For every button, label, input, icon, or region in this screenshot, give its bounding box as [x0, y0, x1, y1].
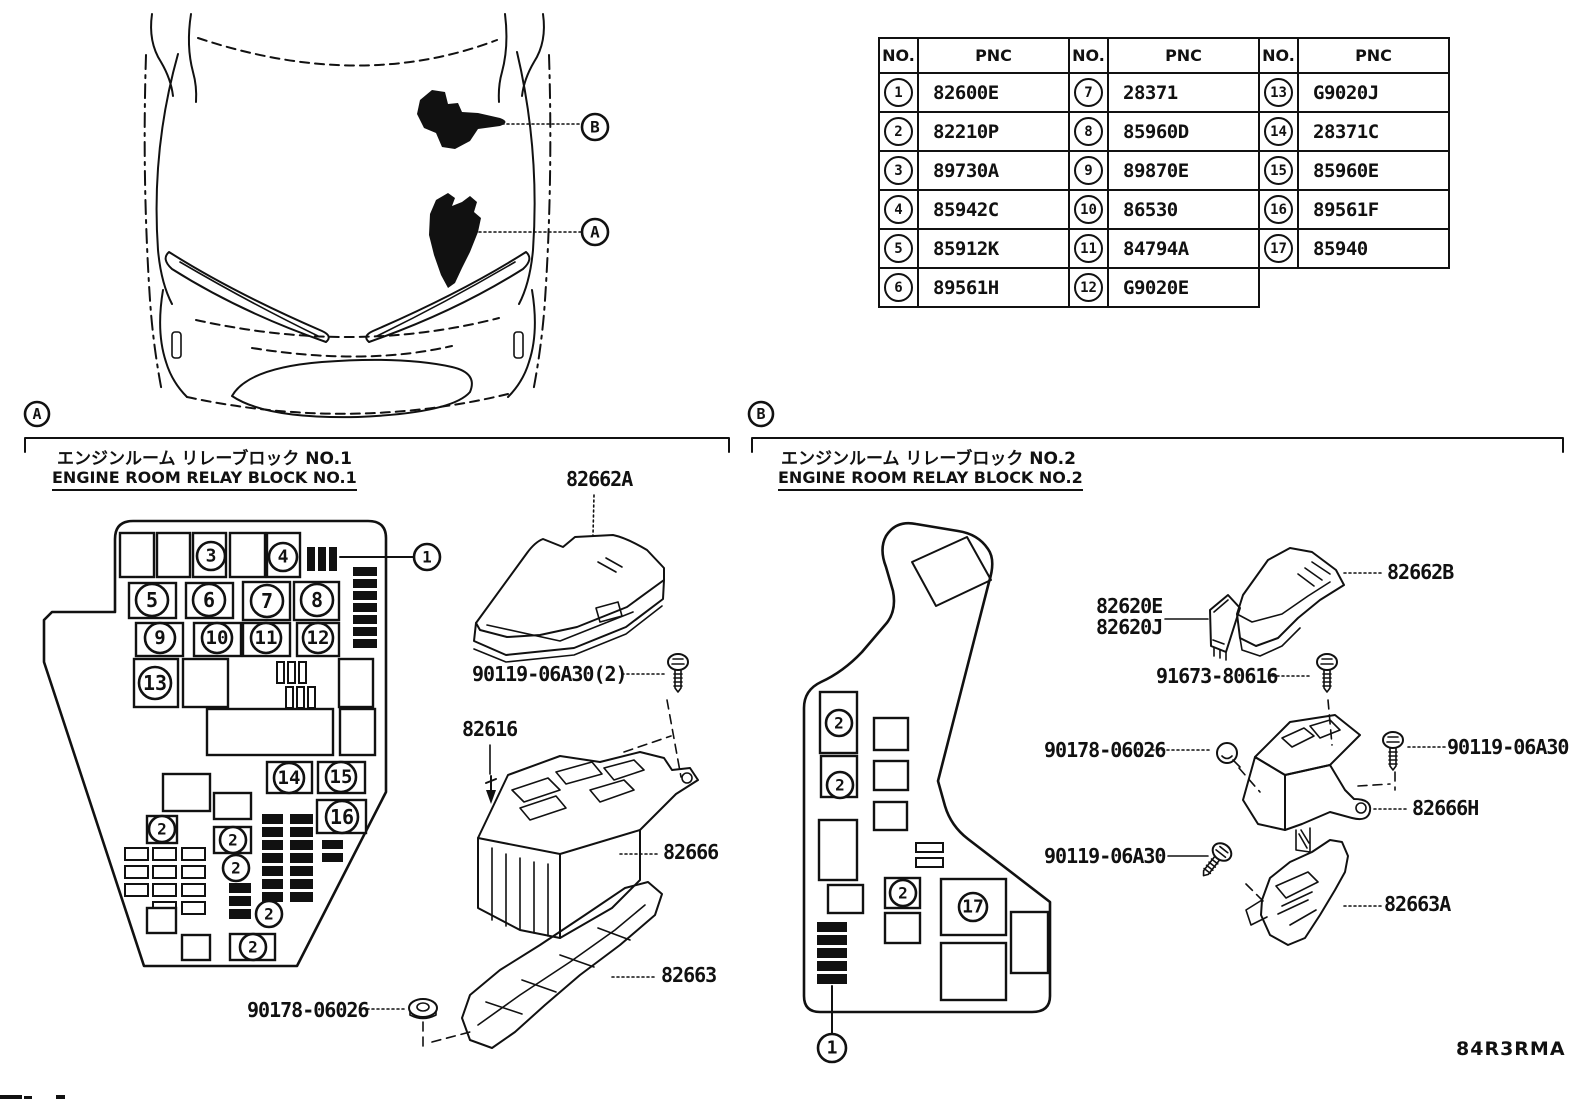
pnc-no-cell: 11: [1069, 229, 1108, 268]
part-label-82666h: 82666H: [1412, 797, 1478, 819]
svg-text:2: 2: [834, 714, 844, 733]
svg-text:15: 15: [330, 766, 353, 788]
pnc-table-row: 182600E72837113G9020J: [879, 73, 1449, 112]
pnc-no-badge: 3: [884, 156, 913, 185]
svg-text:2: 2: [157, 820, 167, 839]
part-label-90119r: 90119-06A30: [1447, 736, 1568, 758]
hood-overview-drawing: [145, 14, 581, 417]
pnc-value-cell: 28371: [1108, 73, 1259, 112]
bracket-82663a-drawing: [1246, 840, 1381, 945]
callout-3: 3: [197, 542, 225, 570]
pnc-no-cell: 8: [1069, 112, 1108, 151]
relay-block-a-location: [429, 193, 481, 288]
part-label-91673: 91673-80616: [1156, 665, 1277, 687]
pnc-no-badge: 6: [884, 273, 913, 302]
pnc-value-cell: 82600E: [918, 73, 1069, 112]
svg-text:12: 12: [307, 627, 330, 649]
pnc-value-cell: 82210P: [918, 112, 1069, 151]
svg-text:3: 3: [206, 546, 217, 567]
pnc-no-cell: 6: [879, 268, 918, 307]
part-label-82616: 82616: [462, 718, 517, 740]
svg-text:11: 11: [255, 627, 278, 649]
callout-2: 2: [149, 816, 175, 842]
callout-a: A: [25, 402, 49, 426]
callout-16: 16: [326, 801, 358, 833]
pnc-value-cell: 85912K: [918, 229, 1069, 268]
grommet-90178b-drawing: [1152, 743, 1260, 792]
part-label-82620j: 82620J: [1096, 616, 1162, 638]
callout-4: 4: [269, 543, 297, 571]
pnc-table-row: 389730A989870E1585960E: [879, 151, 1449, 190]
pnc-no-badge: 9: [1074, 156, 1103, 185]
pnc-no-cell: 9: [1069, 151, 1108, 190]
pnc-no-badge: 14: [1264, 117, 1293, 146]
bolt-90119r-drawing: [1358, 732, 1445, 790]
pnc-no-cell: 17: [1259, 229, 1298, 268]
svg-text:2: 2: [228, 831, 238, 850]
pnc-value-cell: 28371C: [1298, 112, 1449, 151]
pnc-empty-cell: [1298, 268, 1449, 307]
pnc-no-badge: 13: [1264, 78, 1293, 107]
part-label-90178a: 90178-06026: [247, 999, 368, 1021]
pnc-table-no-header: NO.: [1069, 38, 1108, 73]
callout-2: 2: [826, 710, 852, 736]
svg-text:B: B: [590, 118, 600, 137]
svg-text:9: 9: [154, 627, 165, 649]
svg-text:A: A: [590, 223, 600, 242]
pnc-no-cell: 3: [879, 151, 918, 190]
pnc-no-badge: 4: [884, 195, 913, 224]
svg-text:2: 2: [835, 776, 845, 795]
pnc-value-cell: G9020E: [1108, 268, 1259, 307]
part-label-82663: 82663: [661, 964, 716, 986]
pnc-table-pnc-header: PNC: [1298, 38, 1449, 73]
pnc-no-badge: 1: [884, 78, 913, 107]
pnc-no-cell: 15: [1259, 151, 1298, 190]
pnc-no-cell: 7: [1069, 73, 1108, 112]
svg-text:A: A: [32, 405, 41, 423]
pnc-value-cell: 86530: [1108, 190, 1259, 229]
section-b-title-en: ENGINE ROOM RELAY BLOCK NO.2: [778, 468, 1083, 491]
parts-diagram-page: BAAB134567891011121314151622222222171 NO…: [0, 0, 1592, 1099]
part-label-82662a: 82662A: [566, 468, 632, 490]
pnc-table-row: 585912K1184794A1785940: [879, 229, 1449, 268]
pnc-no-badge: 2: [884, 117, 913, 146]
svg-text:8: 8: [311, 588, 323, 612]
svg-text:14: 14: [278, 767, 301, 789]
bolt-90119a-drawing: [622, 654, 688, 777]
pnc-value-cell: 85960E: [1298, 151, 1449, 190]
relay-82620-drawing: [1165, 595, 1240, 660]
svg-text:2: 2: [264, 905, 274, 924]
section-b-title-jp: エンジンルーム リレーブロック NO.2: [781, 444, 1076, 469]
svg-text:2: 2: [231, 859, 241, 878]
bolt-90119l-drawing: [1168, 840, 1266, 904]
callout-6: 6: [193, 584, 225, 616]
pnc-table: NO.PNCNO.PNCNO.PNC182600E72837113G9020J2…: [878, 37, 1450, 308]
page-edge-marks: [0, 1095, 65, 1099]
callout-b: B: [582, 114, 608, 140]
part-label-90119l: 90119-06A30: [1044, 845, 1165, 867]
part-label-90178b: 90178-06026: [1044, 739, 1165, 761]
callout-1: 1: [414, 544, 440, 570]
callout-2: 2: [256, 901, 282, 927]
callout-2: 2: [240, 934, 266, 960]
pnc-no-badge: 16: [1264, 195, 1293, 224]
callout-1: 1: [818, 1034, 846, 1062]
pnc-empty-cell: [1259, 268, 1298, 307]
pnc-value-cell: 89870E: [1108, 151, 1259, 190]
pnc-no-cell: 10: [1069, 190, 1108, 229]
callout-11: 11: [251, 623, 281, 653]
screw-82616-drawing: [486, 745, 496, 804]
pnc-value-cell: 85942C: [918, 190, 1069, 229]
pnc-no-cell: 2: [879, 112, 918, 151]
callout-5: 5: [136, 584, 168, 616]
pnc-no-cell: 13: [1259, 73, 1298, 112]
callout-7: 7: [251, 585, 283, 617]
pnc-table-no-header: NO.: [879, 38, 918, 73]
callout-15: 15: [326, 762, 356, 792]
pnc-table-pnc-header: PNC: [1108, 38, 1259, 73]
svg-text:17: 17: [962, 897, 984, 918]
pnc-value-cell: 89561F: [1298, 190, 1449, 229]
svg-text:2: 2: [898, 884, 908, 903]
pnc-table-no-header: NO.: [1259, 38, 1298, 73]
svg-text:2: 2: [248, 938, 258, 957]
callout-a: A: [582, 219, 608, 245]
callout-9: 9: [145, 623, 175, 653]
part-label-82620e: 82620E: [1096, 595, 1162, 617]
svg-text:1: 1: [422, 548, 432, 567]
pnc-value-cell: 85960D: [1108, 112, 1259, 151]
fuse-strip: [353, 567, 377, 648]
callout-2: 2: [890, 880, 916, 906]
callout-12: 12: [303, 623, 333, 653]
pnc-value-cell: G9020J: [1298, 73, 1449, 112]
section-a-title-en: ENGINE ROOM RELAY BLOCK NO.1: [52, 468, 357, 491]
pnc-no-cell: 16: [1259, 190, 1298, 229]
cover-82662a-drawing: [474, 495, 664, 662]
pnc-value-cell: 85940: [1298, 229, 1449, 268]
callout-2: 2: [220, 827, 246, 853]
callout-b: B: [749, 402, 773, 426]
pnc-no-badge: 15: [1264, 156, 1293, 185]
nut-90178a-drawing: [367, 999, 470, 1046]
svg-text:10: 10: [206, 627, 229, 649]
pnc-no-badge: 5: [884, 234, 913, 263]
svg-text:13: 13: [143, 671, 167, 695]
pnc-no-badge: 7: [1074, 78, 1103, 107]
svg-text:B: B: [756, 405, 765, 423]
callout-2: 2: [827, 772, 853, 798]
relay-block-b-location: [417, 90, 506, 149]
pnc-no-badge: 11: [1074, 234, 1103, 263]
page-code: 84R3RMA: [1456, 1038, 1566, 1060]
pnc-no-cell: 5: [879, 229, 918, 268]
pnc-value-cell: 89730A: [918, 151, 1069, 190]
pnc-no-cell: 14: [1259, 112, 1298, 151]
callout-13: 13: [139, 667, 171, 699]
section-a-title-jp: エンジンルーム リレーブロック NO.1: [57, 444, 352, 469]
svg-text:1: 1: [827, 1038, 838, 1059]
pnc-no-badge: 17: [1264, 234, 1293, 263]
pnc-no-cell: 4: [879, 190, 918, 229]
pnc-no-badge: 12: [1074, 273, 1103, 302]
svg-text:4: 4: [278, 547, 289, 568]
svg-text:16: 16: [330, 805, 354, 829]
pnc-value-cell: 84794A: [1108, 229, 1259, 268]
pnc-table-row: 282210P885960D1428371C: [879, 112, 1449, 151]
callout-2: 2: [223, 855, 249, 881]
mini-fuse-grid: [125, 848, 205, 914]
part-label-82666: 82666: [663, 841, 718, 863]
pnc-no-cell: 1: [879, 73, 918, 112]
pnc-value-cell: 89561H: [918, 268, 1069, 307]
cover-82662b-drawing: [1237, 548, 1383, 656]
svg-text:6: 6: [203, 588, 215, 612]
pnc-table-row: 689561H12G9020E: [879, 268, 1449, 307]
callout-8: 8: [301, 584, 333, 616]
part-label-82662b: 82662B: [1387, 561, 1453, 583]
part-label-82663a: 82663A: [1384, 893, 1450, 915]
relay-block-1-schematic: [44, 521, 413, 966]
pnc-no-cell: 12: [1069, 268, 1108, 307]
pnc-no-badge: 8: [1074, 117, 1103, 146]
part-label-90119a: 90119-06A30(2): [472, 663, 627, 685]
callout-10: 10: [202, 623, 232, 653]
pnc-table-row: 485942C10865301689561F: [879, 190, 1449, 229]
callout-14: 14: [274, 763, 304, 793]
callout-17: 17: [959, 893, 987, 921]
svg-text:5: 5: [146, 588, 158, 612]
pnc-table-pnc-header: PNC: [918, 38, 1069, 73]
pnc-no-badge: 10: [1074, 195, 1103, 224]
svg-text:7: 7: [261, 589, 273, 613]
